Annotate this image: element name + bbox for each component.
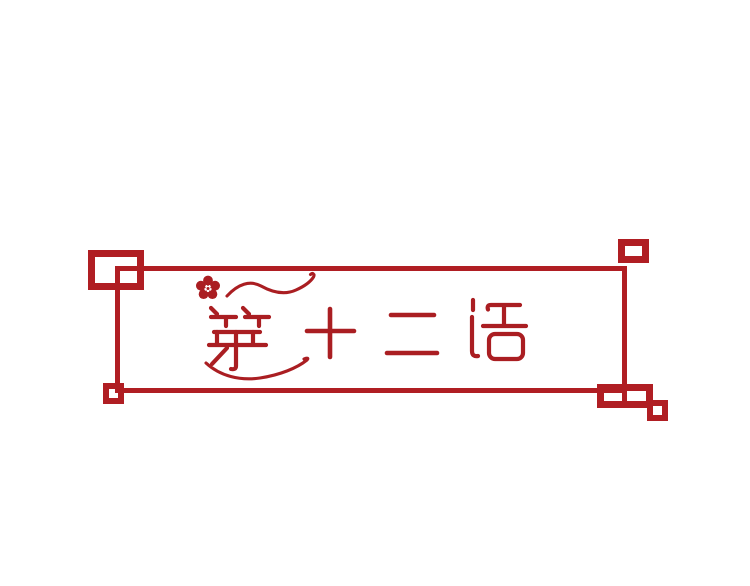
bottom-swirl-flourish <box>206 358 308 379</box>
corner-square-bottom-right-small <box>647 400 668 421</box>
plum-blossom-icon <box>196 276 220 299</box>
hanzi-hua <box>472 300 526 359</box>
hanzi-di <box>209 308 269 369</box>
corner-square-top-right <box>618 239 649 263</box>
hanzi-er <box>387 315 437 353</box>
page-background: 第十二话 <box>0 0 750 586</box>
banner-frame-right-edge-stub <box>622 391 627 403</box>
chapter-title-art <box>185 268 535 386</box>
chapter-title-text: 第十二话 <box>0 0 1 1</box>
hanzi-shi <box>307 309 354 357</box>
top-swirl-flourish <box>227 274 314 296</box>
